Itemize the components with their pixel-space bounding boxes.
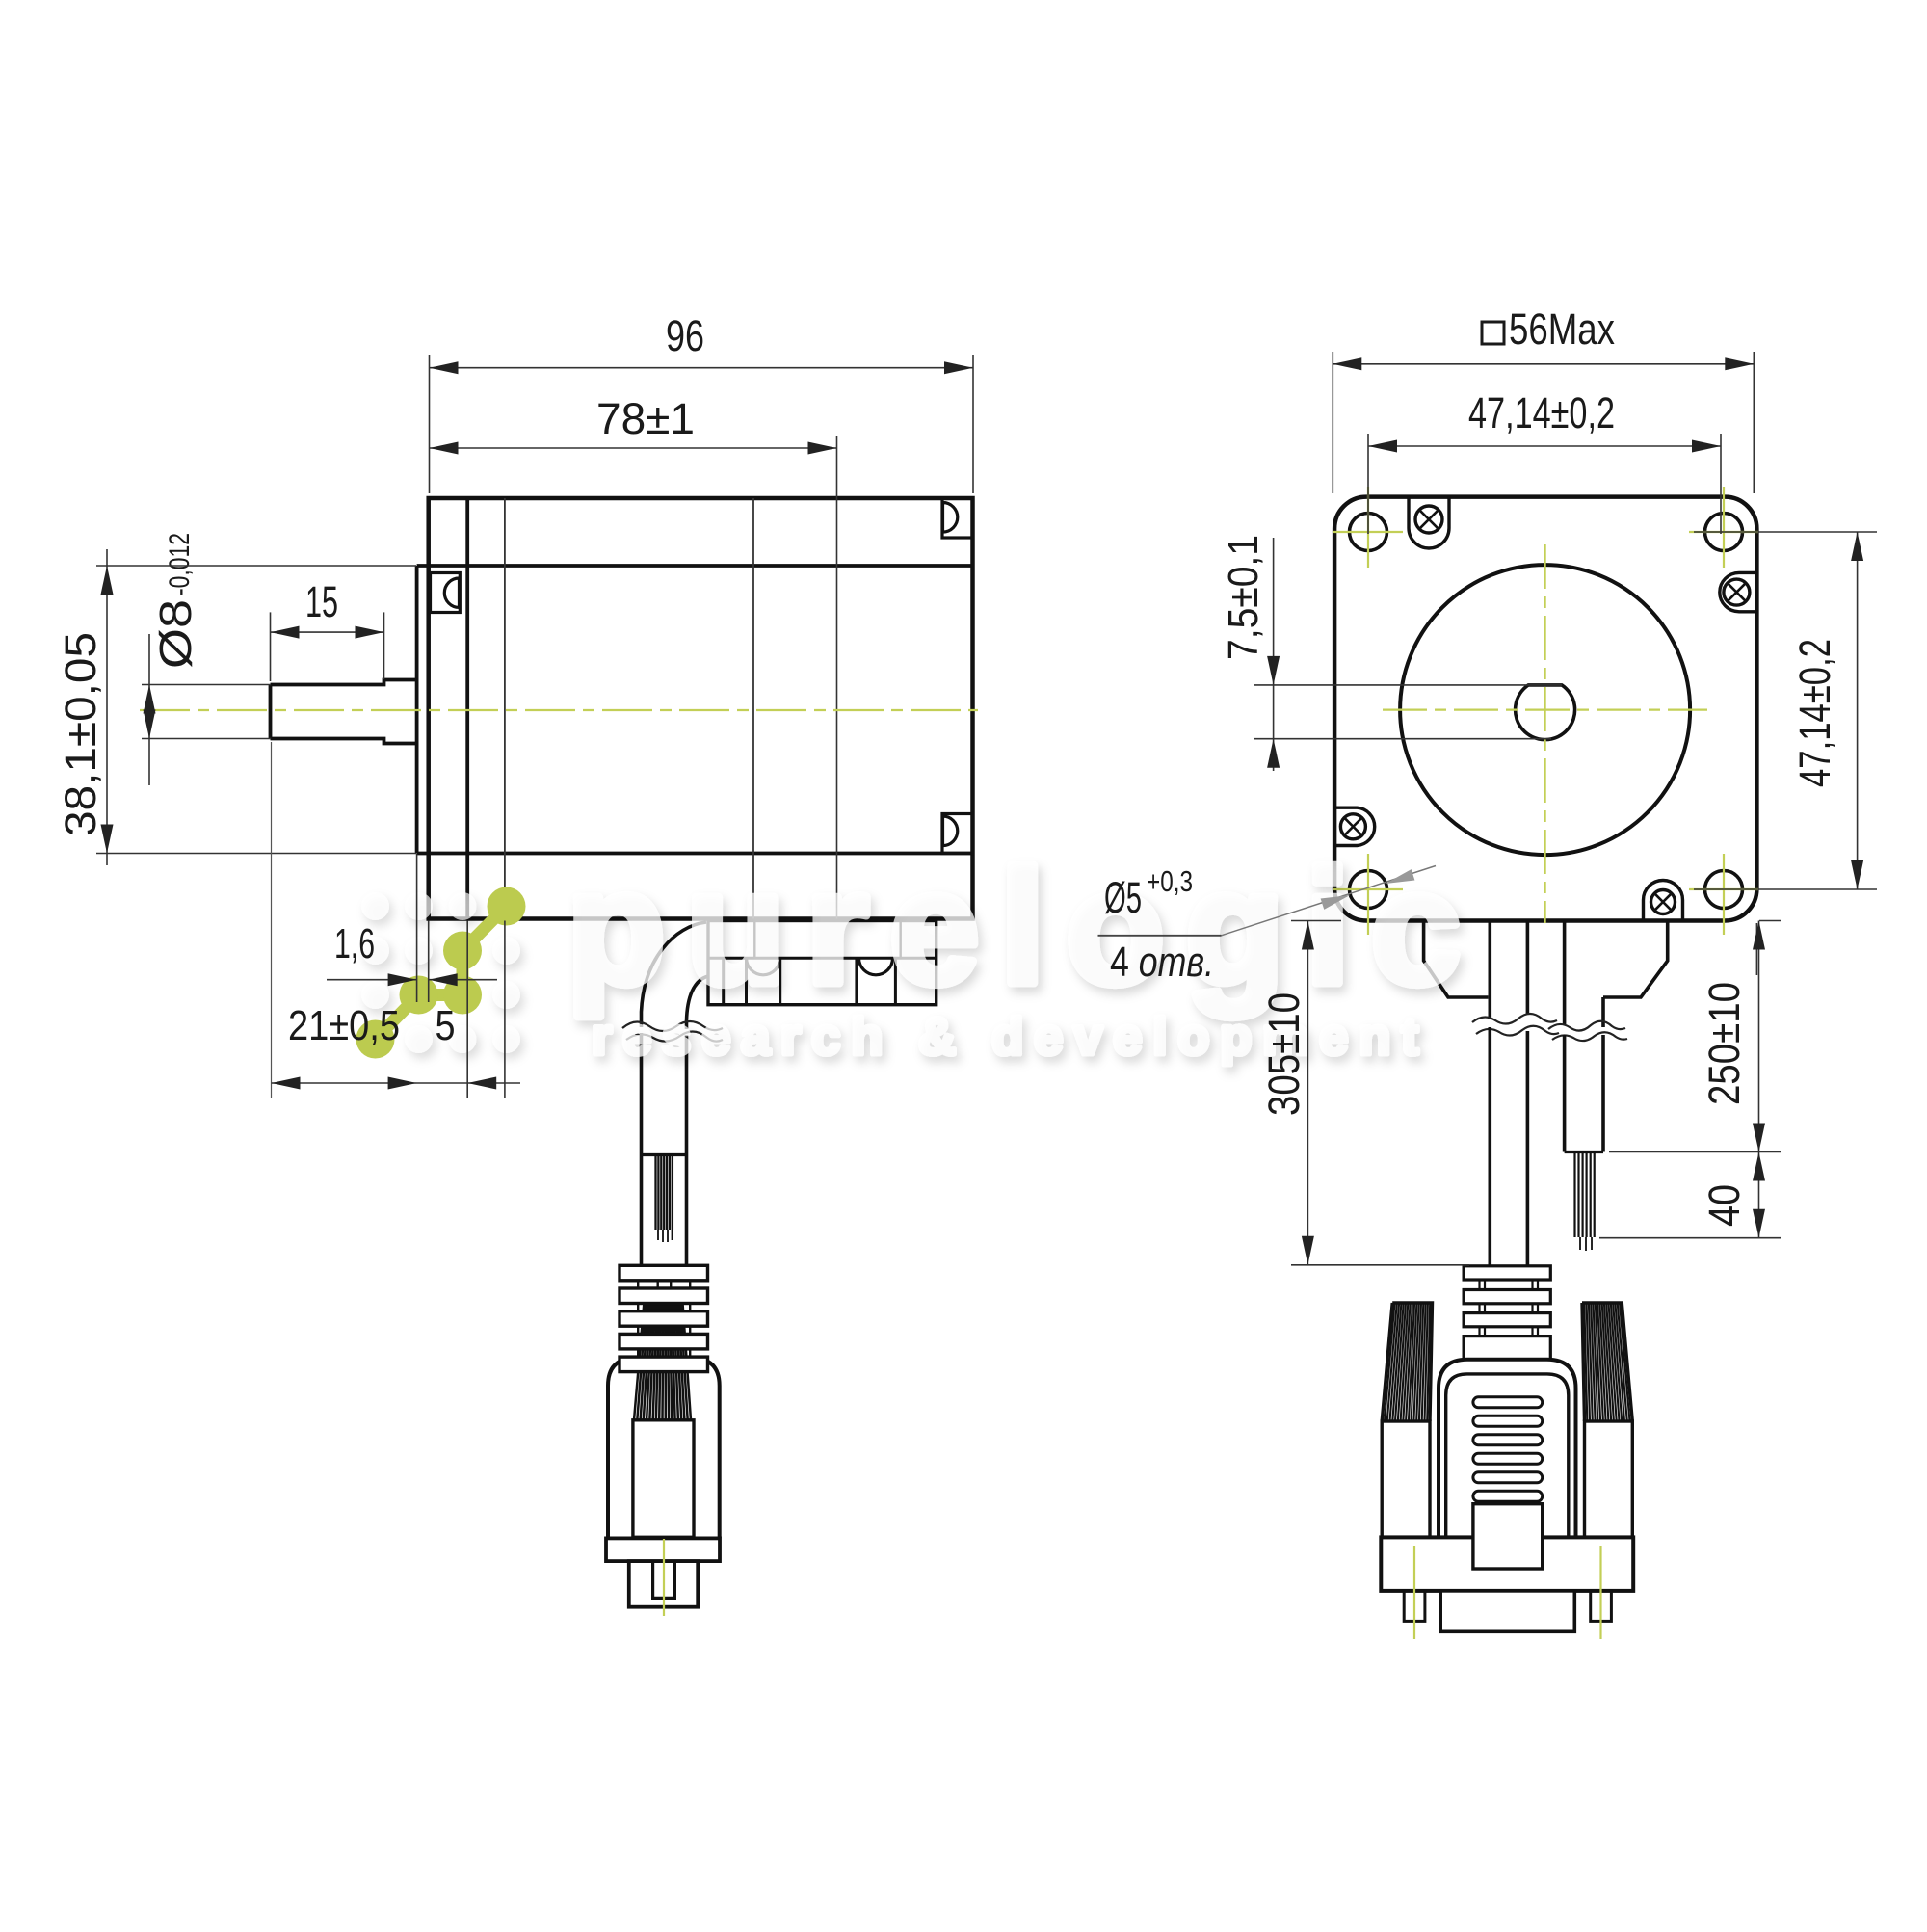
svg-text:5: 5 xyxy=(436,1002,456,1049)
svg-text:purelogic: purelogic xyxy=(567,836,1482,1018)
svg-text:21±0,5: 21±0,5 xyxy=(288,1002,400,1049)
svg-text:7,5±0,1: 7,5±0,1 xyxy=(1220,535,1267,660)
svg-text:4 отв.: 4 отв. xyxy=(1110,939,1214,986)
svg-text:38,1±0,05: 38,1±0,05 xyxy=(56,632,105,836)
svg-text:1,6: 1,6 xyxy=(334,920,375,967)
svg-text:-0,012: -0,012 xyxy=(164,533,196,595)
svg-text:78±1: 78±1 xyxy=(596,394,695,443)
svg-text:47,14±0,2: 47,14±0,2 xyxy=(1468,388,1615,437)
svg-text:15: 15 xyxy=(305,577,338,626)
svg-text:56Max: 56Max xyxy=(1509,304,1615,354)
svg-text:Ø5: Ø5 xyxy=(1104,873,1142,922)
svg-text:Ø8: Ø8 xyxy=(150,599,200,669)
svg-text:96: 96 xyxy=(666,311,704,360)
svg-text:47,14±0,2: 47,14±0,2 xyxy=(1790,639,1839,787)
svg-text:40: 40 xyxy=(1700,1184,1749,1227)
svg-text:250±10: 250±10 xyxy=(1700,982,1749,1105)
svg-text:305±10: 305±10 xyxy=(1259,992,1308,1116)
svg-text:+0,3: +0,3 xyxy=(1147,864,1193,898)
